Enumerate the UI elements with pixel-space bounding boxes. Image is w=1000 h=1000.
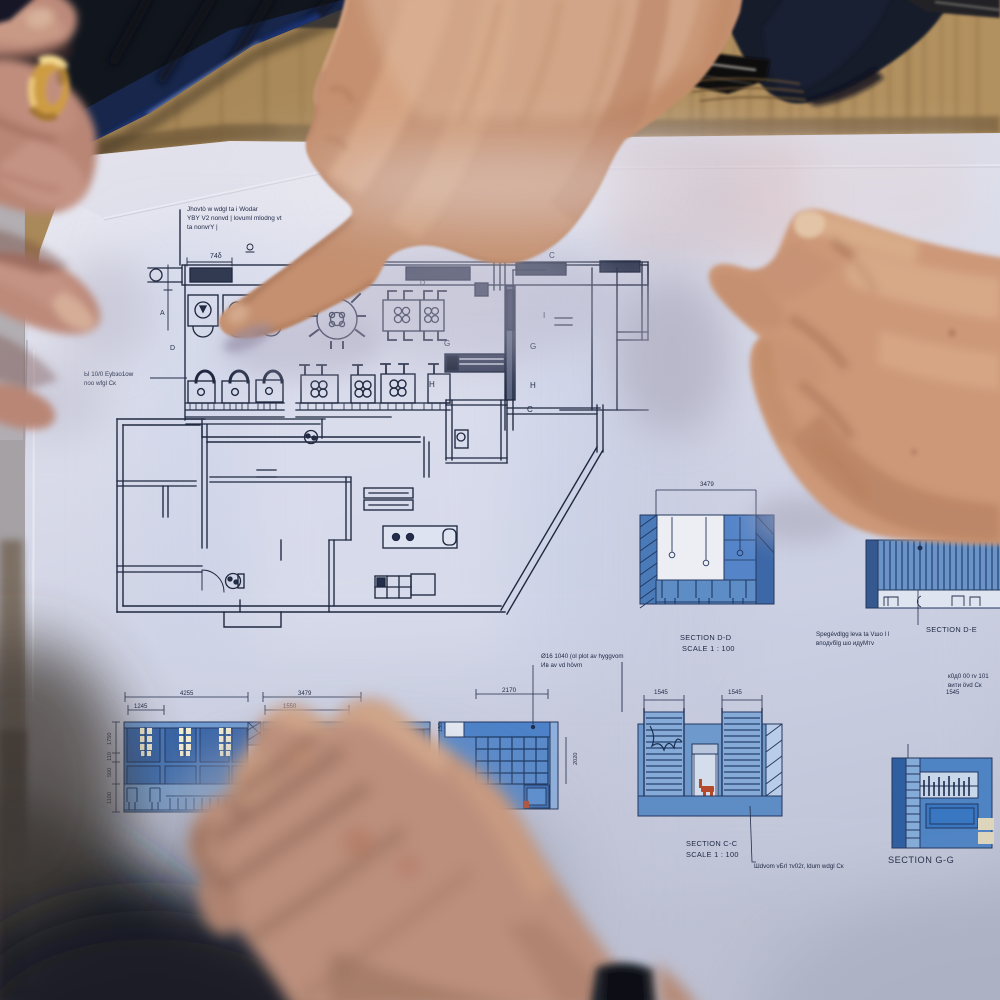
svg-text:SECTION D-E: SECTION D-E bbox=[926, 625, 977, 634]
svg-text:YBY V2 nonvd | lovuml mlodng v: YBY V2 nonvd | lovuml mlodng vt bbox=[187, 215, 282, 222]
svg-text:3479: 3479 bbox=[700, 481, 714, 488]
svg-text:2020: 2020 bbox=[573, 753, 579, 765]
svg-text:A: A bbox=[160, 310, 165, 317]
svg-text:H: H bbox=[429, 380, 435, 389]
svg-text:к0д0 00 rv 101: к0д0 00 rv 101 bbox=[948, 673, 989, 680]
svg-text:SCALE 1 : 100: SCALE 1 : 100 bbox=[682, 644, 735, 653]
svg-text:150: 150 bbox=[438, 723, 444, 732]
svg-text:74δ: 74δ bbox=[210, 253, 222, 260]
svg-text:Шdvom vБrl тv02r, ldum wdgl Ск: Шdvom vБrl тv02r, ldum wdgl Ск bbox=[754, 863, 844, 870]
svg-text:1545: 1545 bbox=[654, 689, 668, 696]
svg-text:C: C bbox=[527, 405, 533, 414]
svg-text:SECTION C-C: SECTION C-C bbox=[686, 839, 738, 848]
svg-text:SCALE 1 : 100: SCALE 1 : 100 bbox=[686, 850, 739, 859]
svg-text:Spegévdlgg leva ta Vшо I l: Spegévdlgg leva ta Vшо I l bbox=[816, 631, 889, 638]
svg-text:2170: 2170 bbox=[502, 687, 517, 694]
svg-text:SECTION G-G: SECTION G-G bbox=[888, 855, 954, 865]
svg-text:1245: 1245 bbox=[134, 704, 148, 710]
svg-text:ta nonvrY |: ta nonvrY | bbox=[187, 224, 218, 231]
svg-text:SECTION D-D: SECTION D-D bbox=[680, 633, 731, 642]
svg-text:1545: 1545 bbox=[728, 689, 742, 696]
svg-text:D: D bbox=[170, 345, 175, 352]
svg-text:Jhovtò w wdgl ta i Wodar: Jhovtò w wdgl ta i Wodar bbox=[187, 206, 259, 213]
svg-text:3479: 3479 bbox=[298, 691, 312, 697]
svg-text:вподvбlg шо идуМтv: вподvбlg шо идуМтv bbox=[816, 640, 875, 647]
svg-text:4255: 4255 bbox=[180, 691, 194, 697]
svg-text:вити övd Ск: вити övd Ск bbox=[948, 682, 982, 689]
svg-text:Ив av vd hövm: Ив av vd hövm bbox=[541, 662, 582, 669]
svg-text:H: H bbox=[530, 381, 536, 390]
svg-text:Ø16 1040 (ol plot av hyggvom: Ø16 1040 (ol plot av hyggvom bbox=[541, 653, 624, 660]
svg-text:1545: 1545 bbox=[946, 690, 960, 696]
